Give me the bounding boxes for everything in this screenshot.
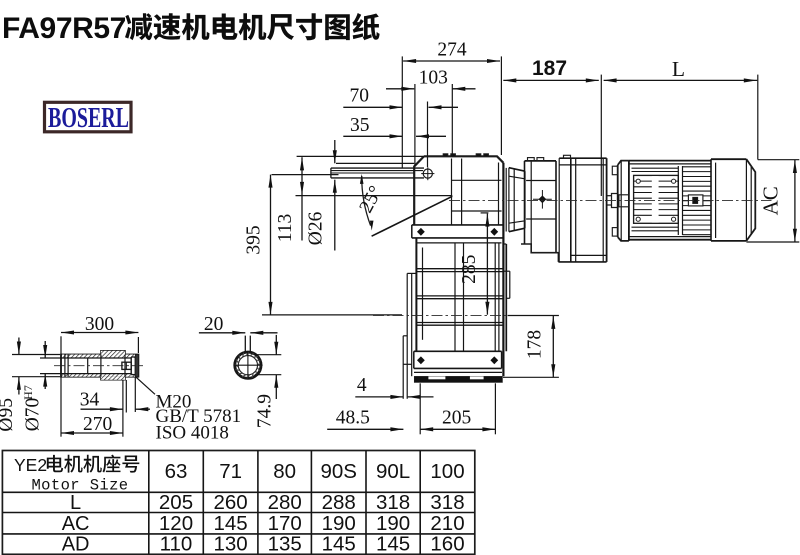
svg-text:395: 395 — [244, 225, 265, 254]
svg-text:274: 274 — [437, 40, 467, 61]
svg-text:H7: H7 — [21, 385, 35, 400]
svg-text:ISO 4018: ISO 4018 — [156, 423, 229, 444]
svg-text:270: 270 — [83, 414, 112, 435]
svg-text:100: 100 — [430, 460, 464, 483]
svg-text:4: 4 — [357, 375, 367, 396]
svg-text:AC: AC — [759, 186, 783, 215]
svg-text:170: 170 — [268, 512, 302, 535]
svg-text:130: 130 — [213, 533, 247, 555]
svg-text:34: 34 — [80, 390, 100, 411]
svg-text:Ø26: Ø26 — [306, 211, 327, 245]
svg-text:AD: AD — [62, 534, 90, 555]
svg-text:70: 70 — [350, 86, 370, 107]
svg-text:90S: 90S — [320, 460, 356, 483]
svg-text:FA97R57: FA97R57 — [2, 12, 126, 45]
svg-text:160: 160 — [430, 533, 464, 555]
svg-text:Ø70: Ø70 — [23, 398, 44, 432]
svg-text:288: 288 — [322, 491, 356, 514]
svg-text:AC: AC — [62, 513, 90, 535]
svg-text:20: 20 — [204, 314, 224, 335]
svg-text:35: 35 — [350, 115, 370, 136]
svg-text:145: 145 — [322, 533, 356, 555]
svg-text:BOSERL: BOSERL — [48, 102, 129, 134]
svg-text:318: 318 — [376, 491, 410, 514]
svg-text:48.5: 48.5 — [336, 408, 370, 429]
svg-text:187: 187 — [532, 57, 567, 80]
svg-text:110: 110 — [160, 533, 193, 555]
svg-text:190: 190 — [322, 512, 356, 535]
svg-text:285: 285 — [459, 255, 480, 284]
svg-text:210: 210 — [430, 512, 464, 535]
svg-text:145: 145 — [376, 533, 410, 555]
svg-text:145: 145 — [213, 512, 247, 535]
svg-text:L: L — [672, 57, 685, 81]
svg-text:178: 178 — [524, 330, 545, 359]
svg-text:L: L — [70, 492, 81, 514]
svg-text:90L: 90L — [376, 460, 410, 483]
svg-text:63: 63 — [165, 460, 188, 483]
svg-text:280: 280 — [268, 491, 302, 514]
svg-text:318: 318 — [430, 491, 464, 514]
svg-text:300: 300 — [85, 314, 114, 335]
svg-text:113: 113 — [275, 214, 296, 243]
svg-text:120: 120 — [159, 512, 193, 535]
svg-text:205: 205 — [159, 491, 193, 514]
svg-text:71: 71 — [219, 460, 242, 483]
svg-text:103: 103 — [419, 68, 448, 89]
svg-text:205: 205 — [442, 408, 471, 429]
svg-text:74.9: 74.9 — [255, 394, 276, 428]
svg-text:YE2: YE2 — [14, 455, 47, 475]
svg-text:80: 80 — [273, 460, 296, 483]
svg-text:135: 135 — [268, 533, 302, 555]
svg-text:190: 190 — [376, 512, 410, 535]
svg-text:Ø95: Ø95 — [0, 398, 17, 432]
svg-text:260: 260 — [213, 491, 247, 514]
